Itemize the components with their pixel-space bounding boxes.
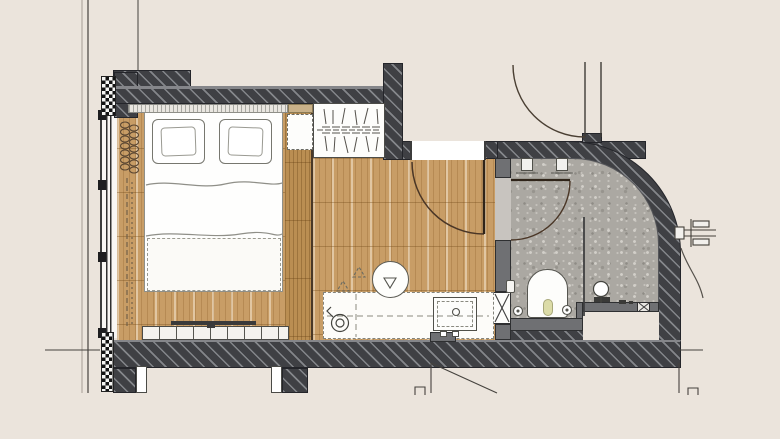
minibar-foot <box>440 331 447 337</box>
window-wall <box>100 110 117 338</box>
wall-bottom <box>113 340 681 368</box>
foot-throw <box>147 238 281 291</box>
service-shaft <box>493 292 511 324</box>
entrance-opening <box>410 141 486 160</box>
minibar <box>433 297 477 331</box>
wall-connection-detail <box>675 219 716 298</box>
window-mullion <box>98 180 106 190</box>
mixer-bracket <box>594 297 610 302</box>
tv-mount <box>207 325 215 328</box>
tv-console <box>142 326 289 340</box>
pillow-right <box>219 119 272 164</box>
bathroom-threshold <box>495 178 511 240</box>
minibar-inner <box>437 301 473 327</box>
niche-opening <box>147 368 271 392</box>
niche-jamb-left <box>136 366 147 393</box>
wardrobe-closet <box>313 103 385 158</box>
wall-entry-left <box>383 63 403 160</box>
wall-pier-below-left <box>113 368 136 393</box>
niche-jamb-right <box>271 366 282 393</box>
window-mullion <box>98 252 106 262</box>
shower-head-right <box>556 158 568 171</box>
wall-pier-below-right <box>282 368 308 393</box>
overhead-cabinet <box>287 114 313 150</box>
wc-drain-insert <box>543 299 553 316</box>
ledge-control <box>619 300 626 304</box>
pillow-left <box>152 119 205 164</box>
minibar-foot <box>452 331 459 337</box>
floor-plan-canvas <box>0 0 780 439</box>
washbasin <box>372 261 409 298</box>
masonry-pier-bottom <box>101 332 114 392</box>
partition-low <box>495 324 511 340</box>
pillow-inner-seam <box>228 126 264 156</box>
masonry-pier-top <box>101 76 116 116</box>
ledge-valve-box <box>637 302 650 312</box>
wall-top <box>113 86 403 104</box>
shower-head-left <box>521 158 533 171</box>
side-shelf <box>288 104 313 113</box>
flush-plate <box>506 280 515 293</box>
pillow-inner-seam <box>161 126 197 156</box>
corridor-door <box>513 62 601 137</box>
ledge-control <box>629 301 633 304</box>
ledge-recess <box>583 312 659 340</box>
partition-stub-top <box>495 158 511 178</box>
